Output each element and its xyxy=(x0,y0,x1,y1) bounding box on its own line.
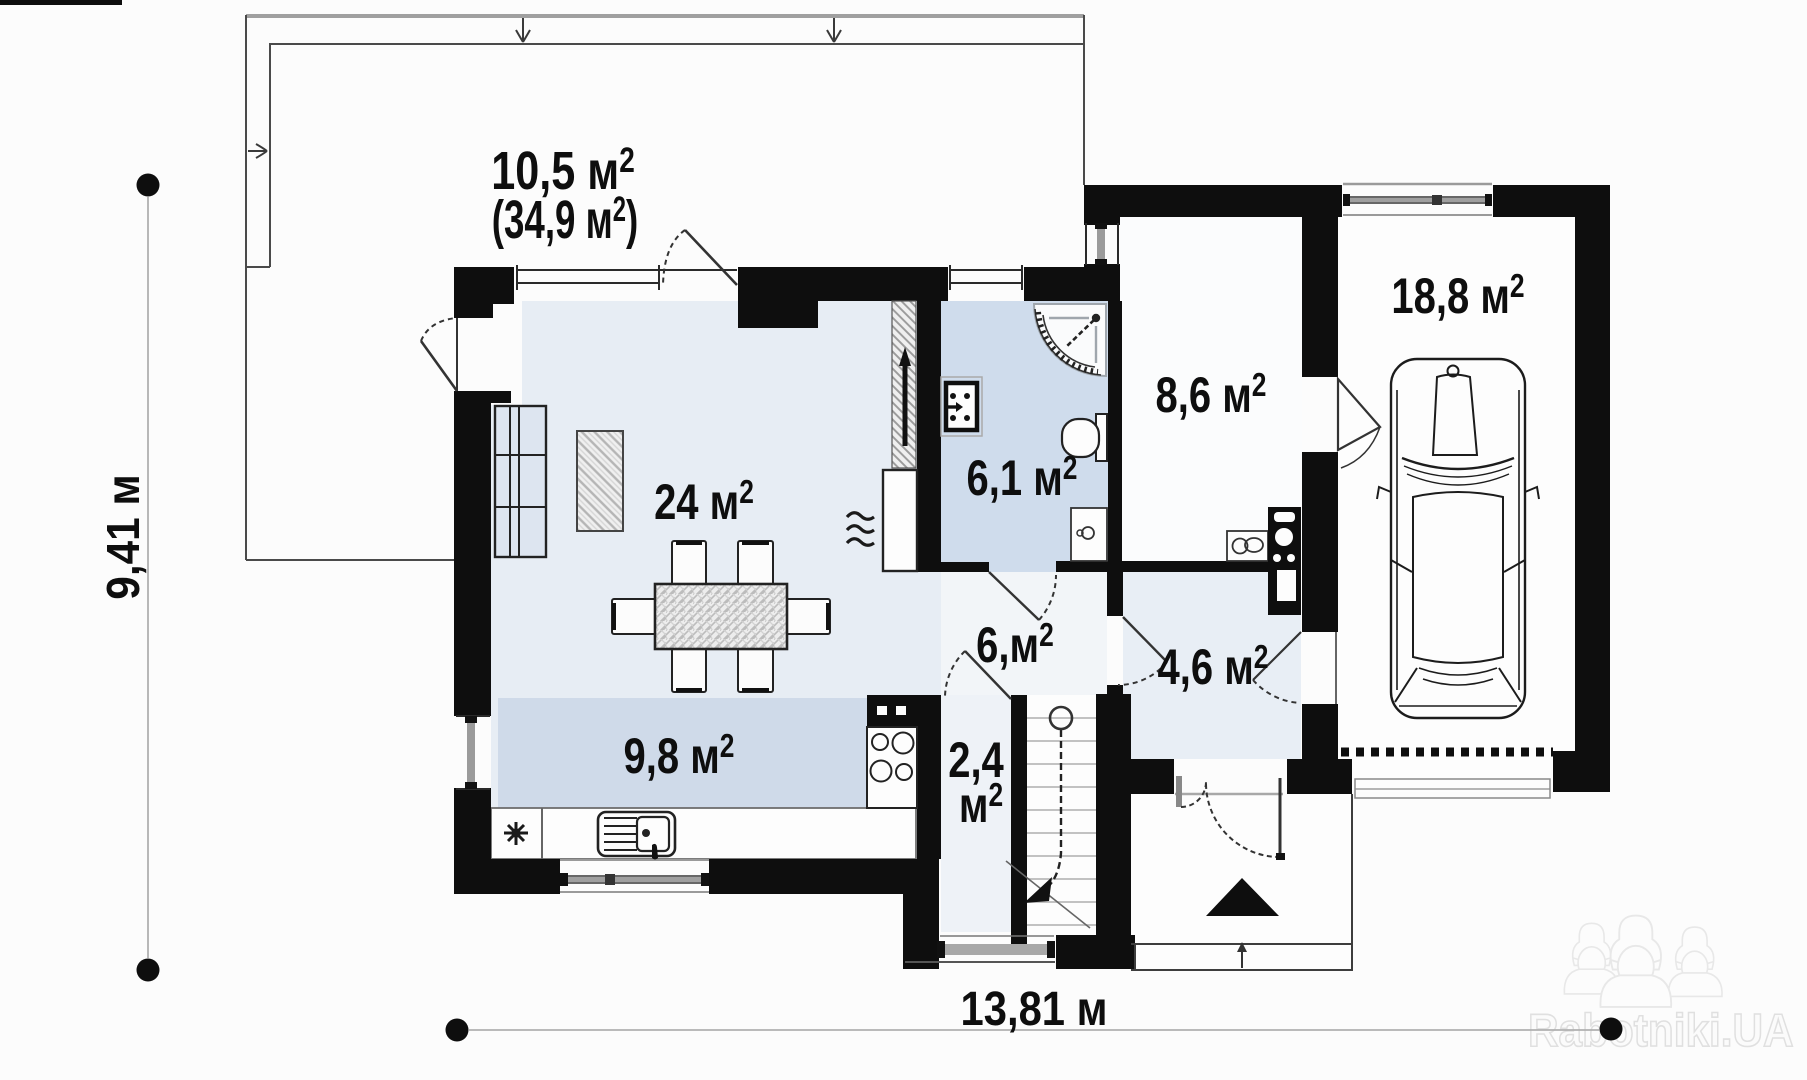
svg-text:9,8 м2: 9,8 м2 xyxy=(624,728,735,784)
svg-text:13,81 м: 13,81 м xyxy=(961,981,1108,1035)
svg-text:8,6 м2: 8,6 м2 xyxy=(1156,367,1267,423)
svg-text:24 м2: 24 м2 xyxy=(654,474,754,530)
svg-text:9,41 м: 9,41 м xyxy=(98,474,149,599)
svg-text:Rabotniki.UA: Rabotniki.UA xyxy=(1528,1005,1794,1056)
svg-text:6,1 м2: 6,1 м2 xyxy=(967,450,1078,506)
svg-text:4,6 м2: 4,6 м2 xyxy=(1158,639,1269,695)
svg-text:18,8 м2: 18,8 м2 xyxy=(1391,268,1524,324)
